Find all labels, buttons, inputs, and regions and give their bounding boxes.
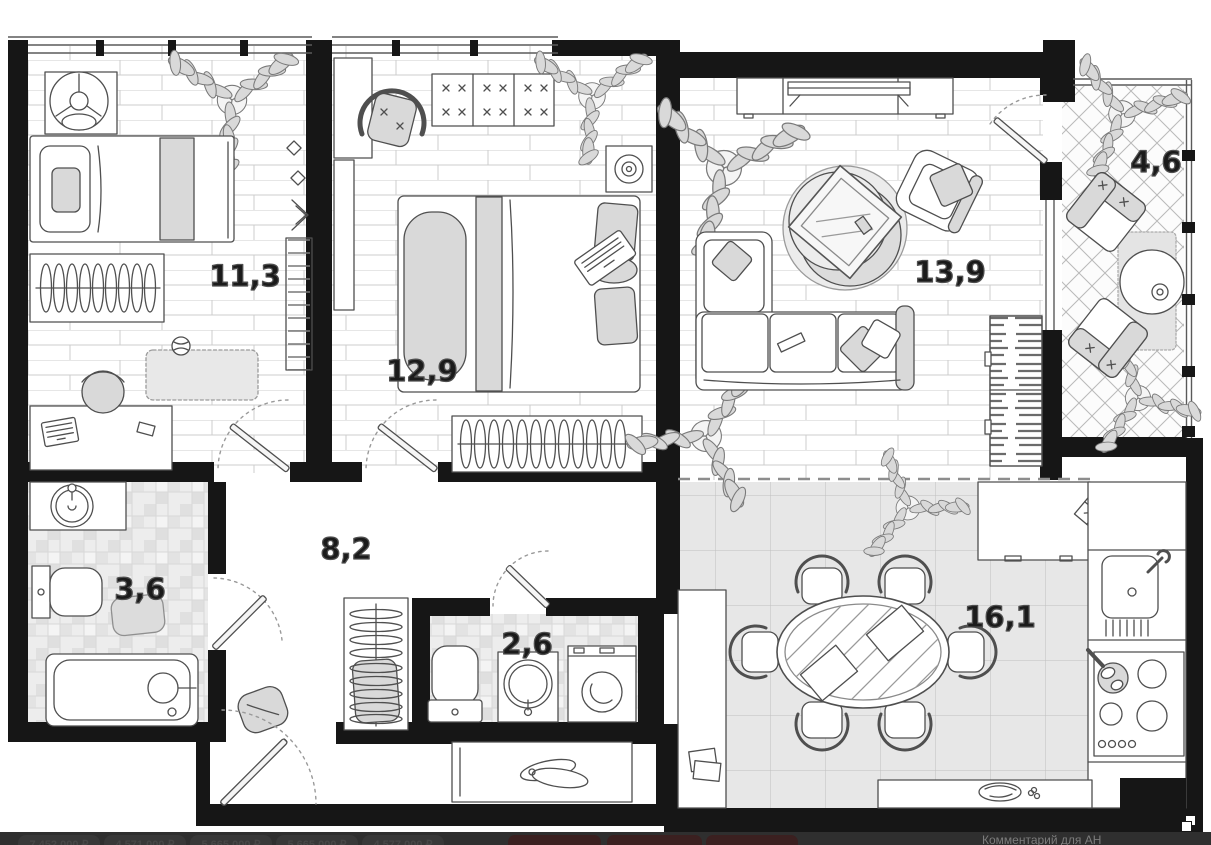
kitchen-counter-run — [1088, 482, 1186, 808]
ceiling-fan — [45, 72, 117, 134]
desk — [30, 406, 172, 470]
copy-icon-front-square — [1181, 821, 1192, 832]
tufted-bench — [432, 74, 554, 126]
balcony-table — [1120, 250, 1184, 314]
duct — [1120, 778, 1186, 810]
ladder-shelf — [286, 238, 312, 370]
price-chip[interactable]: 4 577 000 ₽ — [362, 835, 444, 845]
comment-for-agent-label[interactable]: Комментарий для АН — [982, 833, 1101, 845]
washbasin-counter — [30, 482, 126, 530]
room-area-label: 16,1 — [964, 600, 1036, 634]
single-bed — [30, 136, 234, 242]
door-wc — [493, 551, 550, 608]
room-area-label: 13,9 — [914, 255, 986, 289]
copy-icon[interactable] — [1181, 816, 1197, 832]
bathtub — [46, 654, 198, 726]
room-area-label: 11,3 — [209, 259, 281, 293]
floorplan-drawing: 11,3 — [0, 0, 1211, 845]
speaker — [606, 146, 652, 192]
listing-chip[interactable] — [706, 835, 798, 845]
listing-chip[interactable] — [508, 835, 601, 845]
pouf — [234, 683, 291, 736]
window-living-balcony — [1046, 200, 1054, 330]
price-chip[interactable]: 5 665 000 ₽ — [190, 835, 272, 845]
side-cabinet — [334, 160, 354, 310]
room-area-label: 3,6 — [114, 572, 165, 606]
room-area-label: 2,6 — [501, 627, 552, 661]
price-chip[interactable]: 7 452 000 ₽ — [18, 835, 100, 845]
price-chip[interactable]: 4 571 000 ₽ — [104, 835, 186, 845]
listing-chip[interactable] — [607, 835, 702, 845]
tv-stand — [737, 78, 953, 118]
wardrobe-hangers — [452, 416, 642, 472]
stove-hob — [1088, 650, 1184, 756]
washing-machine — [568, 646, 636, 722]
room-area-label: 12,9 — [386, 354, 458, 388]
price-label: 4 571 000 ₽ — [116, 839, 175, 845]
coat-rack-hangers — [344, 598, 408, 730]
toilet — [428, 646, 482, 722]
room-area-label: 8,2 — [320, 532, 371, 566]
price-label: 5 665 000 ₽ — [288, 839, 347, 845]
bench — [878, 780, 1092, 808]
price-label: 7 452 000 ₽ — [30, 839, 89, 845]
bookshelf — [985, 316, 1042, 466]
floorplan-screen: 11,3 — [0, 0, 1211, 845]
shoe-cabinet — [452, 742, 632, 802]
tall-cabinet — [678, 590, 726, 808]
room-area-label: 4,6 — [1130, 145, 1181, 179]
counter-top — [978, 482, 1090, 561]
door-bathroom — [212, 578, 282, 650]
wardrobe-hangers — [30, 254, 164, 322]
desk-chair — [82, 371, 124, 413]
washbasin — [498, 652, 558, 722]
toilet — [32, 566, 102, 618]
bottom-bar: 7 452 000 ₽ 4 571 000 ₽ 5 665 000 ₽ 5 66… — [0, 832, 1211, 845]
price-label: 5 665 000 ₽ — [202, 839, 261, 845]
price-chip[interactable]: 5 665 000 ₽ — [276, 835, 358, 845]
price-label: 4 577 000 ₽ — [374, 839, 433, 845]
